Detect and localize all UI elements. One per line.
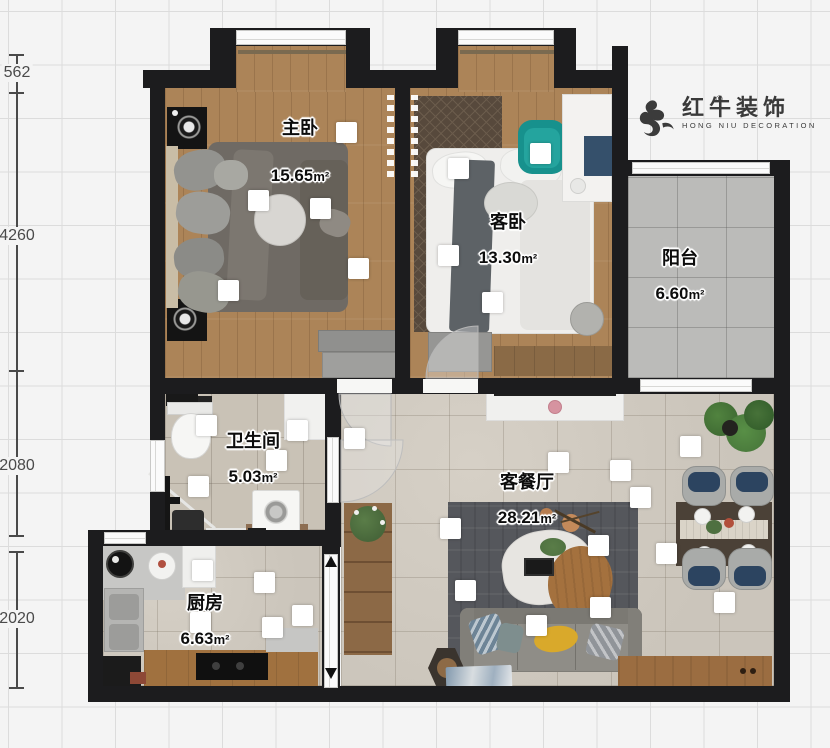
room-label-master-bedroom: 主卧 15.65m² — [240, 118, 360, 187]
round-side-table — [570, 302, 604, 336]
wardrobe — [322, 352, 396, 378]
downlight — [218, 280, 239, 301]
downlight — [344, 428, 365, 449]
cooking-pot — [106, 550, 134, 578]
downlight — [630, 487, 651, 508]
wardrobe — [318, 330, 396, 352]
door-arrow-icon — [325, 556, 337, 567]
downlight — [192, 560, 213, 581]
desk-cup — [570, 178, 586, 194]
chair-cushion — [688, 566, 720, 586]
downlight — [455, 580, 476, 601]
window-bathroom — [150, 440, 165, 492]
downlight — [680, 436, 701, 457]
sideboard — [618, 656, 772, 688]
chair-cushion — [688, 472, 720, 492]
curtain-track — [238, 50, 346, 54]
glass-door-bathroom — [327, 437, 339, 503]
pot-glint — [112, 556, 119, 563]
downlight — [588, 535, 609, 556]
kitchen-item — [130, 672, 146, 684]
decor-bowl — [548, 400, 562, 414]
plant — [744, 400, 774, 430]
downlight — [530, 143, 551, 164]
wall — [395, 70, 410, 380]
sofa-armrest — [460, 608, 474, 672]
chair-cushion — [736, 472, 768, 492]
downlight — [348, 258, 369, 279]
sliding-window-balcony — [640, 379, 752, 392]
dimension-label-2020: 2020 — [0, 610, 37, 628]
dimension-label-562: 562 — [2, 64, 33, 82]
radiator-strip — [387, 95, 394, 177]
downlight — [254, 572, 275, 593]
wall — [88, 686, 790, 702]
logo-text: ® 红牛装饰 HONG NIU DECORATION — [682, 96, 817, 130]
curtain-track — [460, 50, 554, 54]
sink-basin — [109, 624, 139, 650]
washer-door — [264, 500, 288, 524]
chair-cushion — [734, 566, 766, 586]
serving-tray — [524, 558, 554, 576]
room-label-living-dining: 客餐厅 28.21m² — [467, 472, 587, 529]
room-label-kitchen: 厨房 6.63m² — [145, 593, 265, 650]
downlight — [590, 597, 611, 618]
radiator-strip — [411, 95, 418, 177]
dimension-label-4260: 4260 — [0, 227, 37, 245]
downlight — [482, 292, 503, 313]
sideboard-handle — [740, 668, 746, 674]
flower — [372, 506, 377, 511]
registered-mark: ® — [716, 94, 723, 104]
window-balcony-north — [632, 162, 770, 174]
downlight — [262, 617, 283, 638]
decor-pot — [724, 518, 734, 528]
sideboard-handle — [750, 668, 756, 674]
dresser — [428, 332, 492, 372]
low-cabinet — [494, 346, 612, 376]
downlight — [610, 460, 631, 481]
plate — [738, 506, 755, 523]
burner — [212, 662, 220, 670]
lamp-glint — [172, 110, 178, 116]
bull-icon — [636, 96, 678, 145]
downlight — [248, 190, 269, 211]
table-lamp — [176, 114, 202, 140]
floorplan-canvas: 562 4260 2080 2020 ® 红牛装饰 HONG NIU DECOR… — [0, 0, 830, 748]
window-master-bay — [236, 30, 346, 45]
plant-pot — [722, 420, 738, 436]
flower — [354, 510, 359, 515]
desk-organizer — [584, 136, 612, 176]
wall — [612, 46, 628, 394]
window-kitchen — [104, 532, 146, 544]
downlight — [448, 158, 469, 179]
logo-name-cn: 红牛装饰 — [682, 96, 817, 120]
logo-name-en: HONG NIU DECORATION — [682, 121, 817, 130]
door-opening-guest — [423, 379, 478, 393]
burner — [236, 662, 244, 670]
sink-basin — [109, 594, 139, 620]
room-label-balcony: 阳台 6.60m² — [620, 248, 740, 305]
table-plant — [540, 538, 566, 556]
downlight — [526, 615, 547, 636]
plate-food — [158, 560, 166, 568]
door-arrow-icon — [325, 668, 337, 679]
downlight — [714, 592, 735, 613]
flower — [380, 520, 385, 525]
cooktop — [196, 653, 268, 680]
wall — [774, 160, 790, 702]
room-label-guest-bedroom: 客卧 13.30m² — [448, 212, 568, 269]
table-plant — [706, 520, 722, 534]
window-guest-bay — [458, 30, 554, 45]
wall — [88, 530, 103, 702]
room-label-bathroom: 卫生间 5.03m² — [193, 431, 313, 488]
downlight — [656, 543, 677, 564]
company-logo: ® 红牛装饰 HONG NIU DECORATION — [636, 96, 817, 145]
downlight — [310, 198, 331, 219]
downlight — [548, 452, 569, 473]
downlight — [292, 605, 313, 626]
dimension-label-2080: 2080 — [0, 457, 37, 475]
door-opening-master — [337, 379, 392, 393]
downlight — [440, 518, 461, 539]
